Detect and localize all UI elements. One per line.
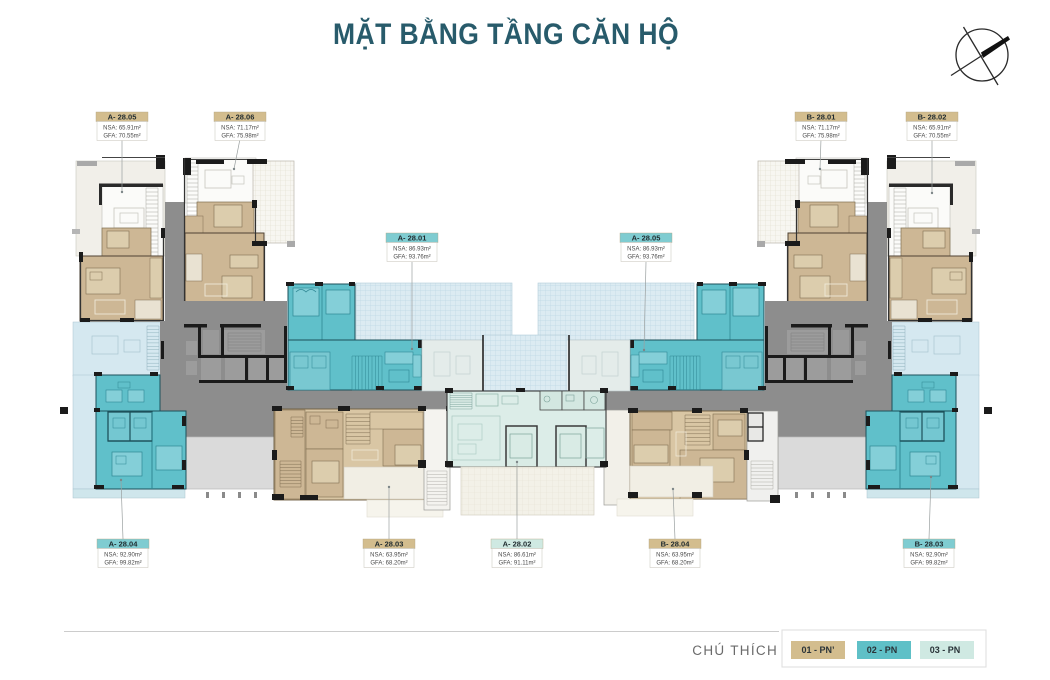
svg-text:03 - PN: 03 - PN [930,645,961,655]
svg-text:MẶT BẰNG TẦNG CĂN HỘ: MẶT BẰNG TẦNG CĂN HỘ [333,17,679,51]
svg-text:B- 28.03: B- 28.03 [915,540,944,549]
svg-text:NSA: 86.93m²: NSA: 86.93m² [393,247,431,253]
svg-text:A- 28.05: A- 28.05 [632,234,661,243]
svg-text:NSA: 92.90m²: NSA: 92.90m² [910,553,948,559]
svg-text:GFA: 75.98m²: GFA: 75.98m² [802,134,839,140]
svg-text:A- 28.06: A- 28.06 [226,113,255,122]
svg-text:GFA: 99.82m²: GFA: 99.82m² [104,561,141,567]
svg-text:GFA: 93.76m²: GFA: 93.76m² [627,255,664,261]
svg-text:GFA: 68.20m²: GFA: 68.20m² [370,561,407,567]
svg-text:GFA: 70.55m²: GFA: 70.55m² [103,134,140,140]
svg-text:NSA: 86.61m²: NSA: 86.61m² [498,553,536,559]
svg-text:GFA: 91.11m²: GFA: 91.11m² [499,561,536,567]
svg-text:A- 28.03: A- 28.03 [375,540,404,549]
svg-text:NSA: 65.91m²: NSA: 65.91m² [913,126,951,132]
svg-text:GFA: 75.98m²: GFA: 75.98m² [221,134,258,140]
svg-text:GFA: 93.76m²: GFA: 93.76m² [393,255,430,261]
svg-text:GFA: 68.20m²: GFA: 68.20m² [656,561,693,567]
svg-text:B- 28.01: B- 28.01 [807,113,836,122]
svg-text:NSA: 63.95m²: NSA: 63.95m² [656,553,694,559]
svg-text:GFA: 99.82m²: GFA: 99.82m² [910,561,947,567]
svg-text:02 - PN: 02 - PN [867,645,898,655]
svg-text:A- 28.01: A- 28.01 [398,234,427,243]
svg-text:NSA: 71.17m²: NSA: 71.17m² [802,126,840,132]
svg-text:NSA: 86.93m²: NSA: 86.93m² [627,247,665,253]
svg-text:NSA: 92.90m²: NSA: 92.90m² [104,553,142,559]
svg-text:NSA: 65.91m²: NSA: 65.91m² [103,126,141,132]
svg-text:B- 28.04: B- 28.04 [661,540,691,549]
svg-text:CHÚ THÍCH: CHÚ THÍCH [692,643,778,658]
svg-text:NSA: 63.95m²: NSA: 63.95m² [370,553,408,559]
svg-text:A- 28.05: A- 28.05 [108,113,137,122]
svg-text:NSA: 71.17m²: NSA: 71.17m² [221,126,259,132]
svg-text:GFA: 70.55m²: GFA: 70.55m² [913,134,950,140]
svg-text:A- 28.04: A- 28.04 [109,540,139,549]
svg-text:A- 28.02: A- 28.02 [503,540,532,549]
svg-text:01 - PN’: 01 - PN’ [801,645,834,655]
svg-text:B- 28.02: B- 28.02 [918,113,947,122]
